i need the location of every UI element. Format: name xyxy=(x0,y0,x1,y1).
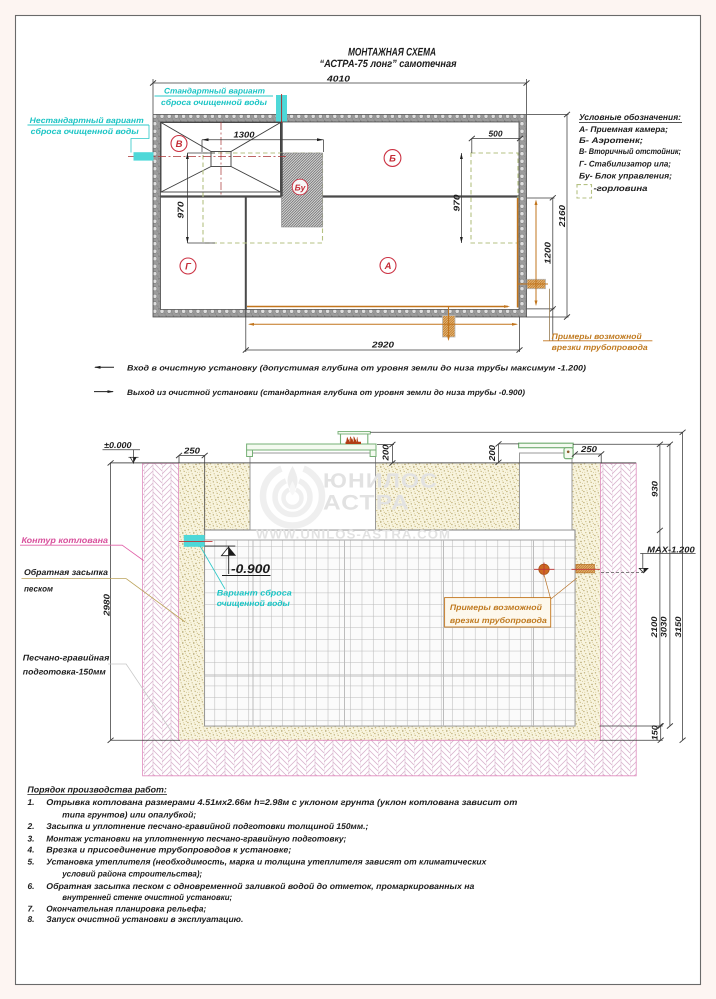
svg-text:Песчано-гравийная: Песчано-гравийная xyxy=(23,653,110,663)
svg-text:Условные обозначения:: Условные обозначения: xyxy=(579,112,681,122)
svg-text:1200: 1200 xyxy=(543,242,553,264)
svg-text:песком: песком xyxy=(24,584,53,594)
svg-text:3.: 3. xyxy=(28,833,35,843)
svg-text:2100: 2100 xyxy=(650,616,659,639)
svg-text:условий района строительства);: условий района строительства); xyxy=(61,868,202,878)
svg-text:Примеры возможной: Примеры возможной xyxy=(450,603,542,612)
svg-text:1300: 1300 xyxy=(234,130,255,140)
svg-text:Нестандартный вариант: Нестандартный вариант xyxy=(30,116,144,125)
svg-text:2160: 2160 xyxy=(557,205,567,228)
svg-text:WWW.UNILOS-ASTRA.COM: WWW.UNILOS-ASTRA.COM xyxy=(256,528,451,542)
svg-text:Окончательная планировка релье: Окончательная планировка рельефа; xyxy=(46,904,206,914)
svg-text:970: 970 xyxy=(176,201,186,218)
svg-text:200: 200 xyxy=(381,444,391,461)
svg-text:“АСТРА-75 лонг” самотечная: “АСТРА-75 лонг” самотечная xyxy=(320,58,457,70)
svg-text:2920: 2920 xyxy=(371,340,394,350)
svg-text:Контур котлована: Контур котлована xyxy=(22,535,109,545)
svg-text:150: 150 xyxy=(650,725,659,740)
svg-text:5.: 5. xyxy=(28,857,35,867)
svg-text:Порядок производства работ:: Порядок производства работ: xyxy=(27,784,167,794)
svg-text:Б- Аэротенк;: Б- Аэротенк; xyxy=(579,136,643,145)
svg-text:930: 930 xyxy=(651,480,660,497)
svg-text:Б: Б xyxy=(389,154,396,165)
svg-text:8.: 8. xyxy=(28,914,35,924)
svg-text:сброса очищенной воды: сброса очищенной воды xyxy=(161,98,267,107)
svg-text:внутренней стенке очистной уст: внутренней стенке очистной установки; xyxy=(62,892,232,902)
svg-text:Запуск очистной установки в эк: Запуск очистной установки в эксплуатацию… xyxy=(46,914,243,924)
svg-text:В: В xyxy=(176,139,183,150)
svg-text:3030: 3030 xyxy=(660,616,669,638)
svg-text:500: 500 xyxy=(489,129,503,139)
svg-text:врезки трубопровода: врезки трубопровода xyxy=(552,343,649,352)
svg-text:подготовка-150мм: подготовка-150мм xyxy=(23,667,106,677)
svg-text:±0.000: ±0.000 xyxy=(104,440,132,450)
svg-text:очищенной воды: очищенной воды xyxy=(217,599,290,608)
svg-text:Бу: Бу xyxy=(295,183,307,193)
svg-text:Отрывка котлована размерами 4.: Отрывка котлована размерами 4.51мх2.66м … xyxy=(46,797,518,807)
svg-text:А: А xyxy=(384,261,392,272)
svg-text:6.: 6. xyxy=(28,881,35,891)
svg-text:ЮНИЛОС: ЮНИЛОС xyxy=(323,470,438,493)
svg-text:1.: 1. xyxy=(28,797,35,807)
svg-text:Вариант сброса: Вариант сброса xyxy=(217,588,293,597)
svg-text:Установка утеплителя (необходи: Установка утеплителя (необходимость, мар… xyxy=(46,857,486,867)
svg-text:2980: 2980 xyxy=(102,594,112,617)
svg-text:3150: 3150 xyxy=(674,616,683,638)
svg-text:А- Приемная камера;: А- Приемная камера; xyxy=(578,125,668,134)
svg-text:Засыпка и уплотнение песчано-г: Засыпка и уплотнение песчано-гравийной п… xyxy=(46,821,368,831)
svg-text:7.: 7. xyxy=(28,904,35,914)
svg-text:200: 200 xyxy=(487,445,497,462)
svg-text:Монтаж установки на уплотненну: Монтаж установки на уплотненную песчано-… xyxy=(46,833,346,843)
svg-text:Обратная засыпка: Обратная засыпка xyxy=(24,567,108,577)
svg-text:типа грунтов) или опалубкой;: типа грунтов) или опалубкой; xyxy=(62,809,196,819)
svg-text:4.: 4. xyxy=(27,845,35,855)
svg-text:сброса очищенной воды: сброса очищенной воды xyxy=(31,127,139,136)
svg-text:врезки трубопровода: врезки трубопровода xyxy=(450,616,548,625)
svg-text:4010: 4010 xyxy=(326,74,351,84)
svg-text:Выход из очистной установки (с: Выход из очистной установки (стандартная… xyxy=(127,388,525,397)
svg-text:2.: 2. xyxy=(27,821,35,831)
svg-text:АСТРА: АСТРА xyxy=(323,492,410,515)
svg-text:Врезка и присоединение трубопр: Врезка и присоединение трубопроводов к у… xyxy=(46,845,291,855)
svg-text:МАХ-1.200: МАХ-1.200 xyxy=(647,544,695,554)
svg-text:Обратная засыпка песком с одно: Обратная засыпка песком с одновременной … xyxy=(46,881,474,891)
svg-text:Бу- Блок управления;: Бу- Блок управления; xyxy=(579,172,672,181)
svg-text:-горловина: -горловина xyxy=(594,184,649,193)
svg-text:Примеры возможной: Примеры возможной xyxy=(552,332,642,341)
svg-text:970: 970 xyxy=(452,194,462,211)
svg-text:250: 250 xyxy=(183,445,200,455)
svg-text:В- Вторичный отстойник;: В- Вторичный отстойник; xyxy=(579,147,681,156)
svg-text:Вход в очистную установку (доп: Вход в очистную установку (допустимая гл… xyxy=(127,364,586,373)
svg-text:МОНТАЖНАЯ СХЕМА: МОНТАЖНАЯ СХЕМА xyxy=(348,47,436,59)
svg-text:250: 250 xyxy=(580,444,597,454)
svg-text:Стандартный вариант: Стандартный вариант xyxy=(164,87,265,96)
svg-text:Г- Стабилизатор ила;: Г- Стабилизатор ила; xyxy=(579,159,671,168)
svg-text:-0.900: -0.900 xyxy=(231,562,270,576)
